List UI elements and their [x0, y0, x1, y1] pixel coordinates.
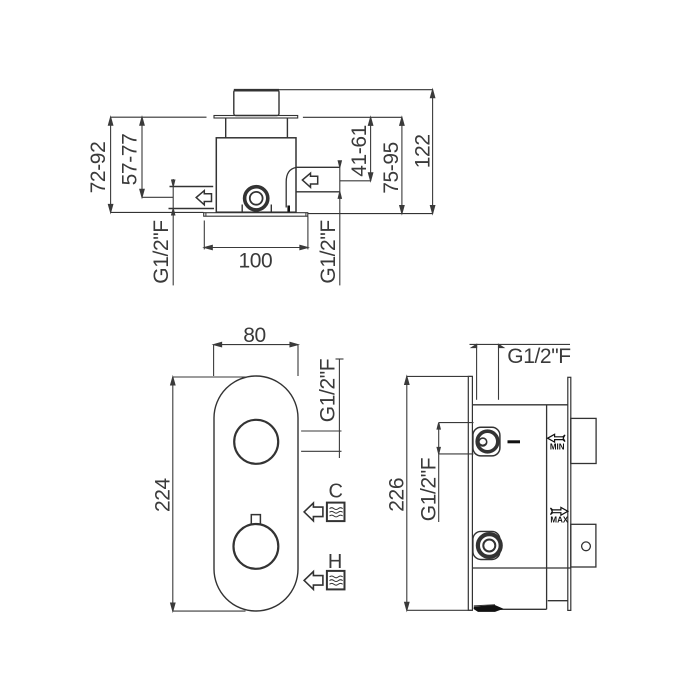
svg-text:80: 80	[243, 324, 266, 347]
svg-text:MIN: MIN	[550, 443, 565, 452]
svg-text:MAX: MAX	[550, 515, 568, 524]
svg-text:G1/2"F: G1/2"F	[507, 345, 570, 368]
svg-text:100: 100	[238, 250, 272, 273]
svg-text:G1/2"F: G1/2"F	[317, 220, 340, 283]
svg-text:H: H	[328, 551, 342, 573]
svg-text:75-95: 75-95	[380, 142, 403, 194]
svg-text:41-61: 41-61	[348, 125, 371, 177]
svg-text:G1/2"F: G1/2"F	[418, 458, 441, 521]
svg-text:122: 122	[412, 134, 435, 168]
svg-text:G1/2"F: G1/2"F	[150, 220, 173, 283]
svg-text:72-92: 72-92	[87, 142, 110, 194]
svg-text:G1/2"F: G1/2"F	[317, 359, 340, 422]
svg-text:57-77: 57-77	[119, 134, 142, 186]
svg-text:224: 224	[152, 477, 175, 512]
svg-text:C: C	[328, 480, 342, 502]
svg-text:226: 226	[385, 478, 408, 512]
